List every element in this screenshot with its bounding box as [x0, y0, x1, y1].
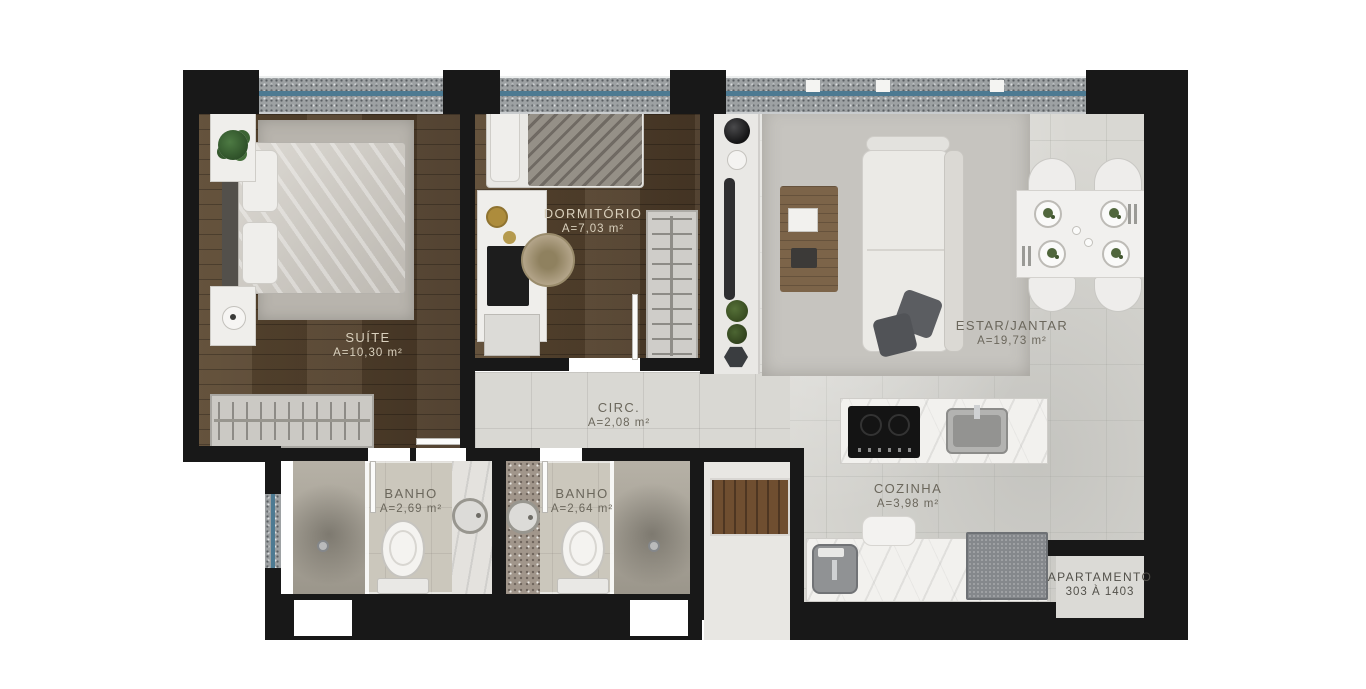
- plant: [218, 130, 248, 160]
- burner: [860, 414, 882, 436]
- bathroom-sink: [452, 498, 488, 534]
- lamp-knob: [230, 314, 236, 320]
- plate: [1034, 200, 1062, 228]
- moss-ball: [726, 300, 748, 322]
- water-purifier: [862, 516, 916, 546]
- decor-sphere-black: [724, 118, 750, 144]
- laundry-sink: [812, 544, 858, 594]
- wall: [640, 358, 702, 371]
- wall: [1086, 70, 1188, 114]
- soap-tray: [818, 548, 844, 557]
- pouf: [521, 233, 575, 287]
- room-area: A=2,69 m²: [380, 502, 442, 516]
- room-name: BANHO: [551, 486, 613, 502]
- wardrobe-rack: [646, 210, 698, 362]
- room-area: A=10,30 m²: [333, 346, 403, 360]
- fridge-cabinet: [966, 532, 1048, 600]
- decor-sphere-white: [727, 150, 747, 170]
- shower-head: [648, 540, 660, 552]
- room-area: A=3,98 m²: [874, 497, 942, 511]
- cooktop-knobs: [858, 448, 914, 452]
- wall-opening: [294, 600, 352, 636]
- burner: [888, 414, 910, 436]
- wall: [700, 84, 714, 374]
- window-sill: [726, 76, 1086, 114]
- faucet: [832, 560, 837, 580]
- room-name: DORMITÓRIO: [544, 206, 643, 222]
- wall: [1048, 540, 1146, 556]
- pillow: [242, 222, 278, 284]
- window-glass: [271, 494, 275, 568]
- cutlery: [1128, 204, 1131, 224]
- room-label-banho-1: BANHO A=2,69 m²: [380, 486, 442, 517]
- tv: [724, 178, 735, 300]
- sink-basin: [953, 415, 1001, 447]
- room-label-dormitorio: DORMITÓRIO A=7,03 m²: [544, 206, 643, 237]
- wall: [690, 448, 704, 618]
- wall: [475, 358, 569, 371]
- window-glass: [500, 91, 670, 96]
- wall: [410, 448, 416, 461]
- room-area: A=2,64 m²: [551, 502, 613, 516]
- bathroom-sink: [506, 500, 540, 534]
- wall: [582, 448, 704, 461]
- moss-ball: [727, 324, 747, 344]
- plate: [1038, 240, 1066, 268]
- cup: [1072, 226, 1081, 235]
- garnish: [1109, 208, 1119, 218]
- window-mullion: [876, 80, 890, 92]
- room-label-estar-jantar: ESTAR/JANTAR A=19,73 m²: [956, 318, 1068, 349]
- pillow: [490, 102, 520, 182]
- room-label-suite: SUÍTE A=10,30 m²: [333, 330, 403, 361]
- wall: [279, 448, 368, 461]
- wall: [790, 448, 804, 618]
- bathroom-door: [370, 461, 376, 513]
- garnish: [1111, 248, 1121, 258]
- wall: [670, 70, 726, 114]
- toilet: [381, 520, 425, 578]
- room-name: SUÍTE: [333, 330, 403, 346]
- toilet-tank: [557, 578, 609, 594]
- window-sill: [259, 76, 443, 114]
- desk-cabinet: [484, 314, 540, 356]
- cup: [1084, 238, 1093, 247]
- window-glass: [259, 91, 443, 96]
- cutlery: [1022, 246, 1025, 266]
- cutlery: [1028, 246, 1031, 266]
- room-label-banho-2: BANHO A=2,64 m²: [551, 486, 613, 517]
- shower-head: [317, 540, 329, 552]
- shower-area: [614, 461, 690, 594]
- window-mullion: [990, 80, 1004, 92]
- shower-glass: [365, 461, 369, 594]
- window-mullion: [806, 80, 820, 92]
- decor-plate: [486, 206, 508, 228]
- window-sill: [500, 76, 670, 114]
- floor-plan: SUÍTE A=10,30 m² DORMITÓRIO A=7,03 m² ES…: [0, 0, 1366, 689]
- shower-area: [293, 461, 365, 594]
- garnish: [1047, 248, 1057, 258]
- rack-shelves: [652, 218, 692, 356]
- apartment-line2: 303 À 1403: [1048, 585, 1153, 599]
- faucet: [974, 405, 980, 419]
- entry-door: [710, 478, 790, 536]
- toilet-tank: [377, 578, 429, 594]
- plate: [1102, 240, 1130, 268]
- room-label-cozinha: COZINHA A=3,98 m²: [874, 481, 942, 512]
- toilet: [561, 520, 605, 578]
- cutlery: [1134, 204, 1137, 224]
- closet-rail: [214, 419, 370, 422]
- apartment-label: APARTAMENTO 303 À 1403: [1048, 570, 1153, 599]
- coffee-table: [780, 186, 838, 292]
- wall: [183, 70, 199, 462]
- wall: [704, 448, 804, 462]
- apartment-line1: APARTAMENTO: [1048, 570, 1153, 585]
- room-area: A=19,73 m²: [956, 334, 1068, 348]
- plate: [1100, 200, 1128, 228]
- bedroom-door: [632, 294, 638, 360]
- wall-opening: [630, 600, 688, 636]
- room-name: COZINHA: [874, 481, 942, 497]
- book: [788, 208, 818, 232]
- room-name: BANHO: [380, 486, 442, 502]
- room-area: A=7,03 m²: [544, 222, 643, 236]
- room-name: CIRC.: [588, 400, 650, 416]
- wall: [492, 448, 506, 596]
- wall: [460, 84, 475, 448]
- room-label-circ: CIRC. A=2,08 m²: [588, 400, 650, 431]
- room-area: A=2,08 m²: [588, 416, 650, 430]
- room-name: ESTAR/JANTAR: [956, 318, 1068, 334]
- window-sill: [265, 494, 281, 568]
- wall: [1144, 114, 1188, 640]
- wall: [790, 602, 1056, 640]
- bathroom-door: [542, 461, 548, 513]
- book: [791, 248, 817, 268]
- cooktop: [848, 406, 920, 458]
- sofa-seam: [867, 249, 945, 251]
- window-glass: [726, 91, 1086, 96]
- suite-door: [416, 438, 466, 445]
- kitchen-sink: [946, 408, 1008, 454]
- closet-rack: [210, 394, 374, 448]
- decor-vase: [503, 231, 516, 244]
- garnish: [1043, 208, 1053, 218]
